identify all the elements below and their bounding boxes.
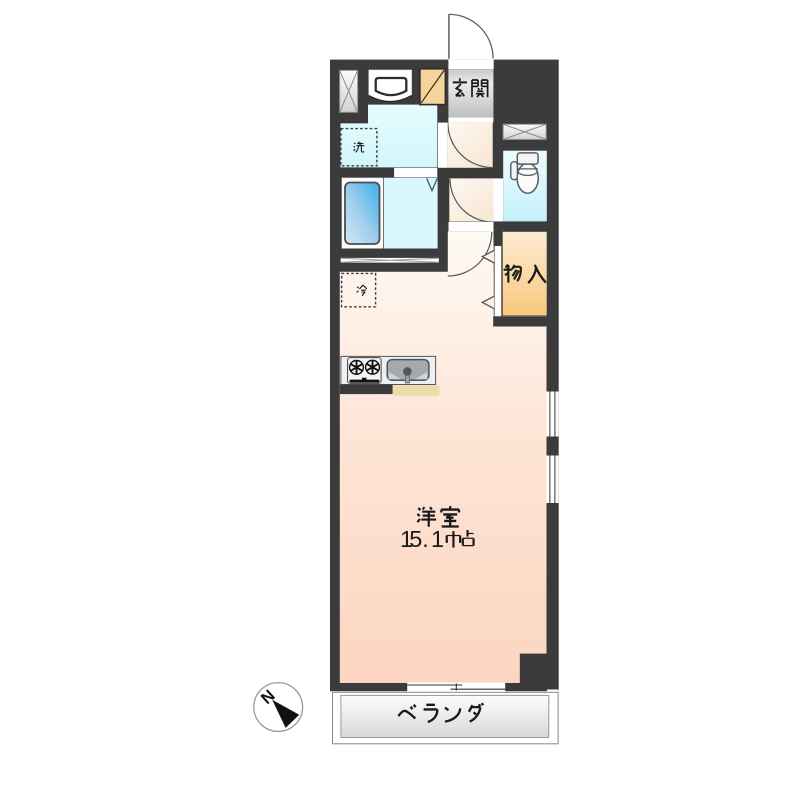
- svg-text:5: 5: [409, 526, 422, 552]
- svg-text:1: 1: [431, 526, 444, 552]
- svg-text:.: .: [422, 526, 429, 552]
